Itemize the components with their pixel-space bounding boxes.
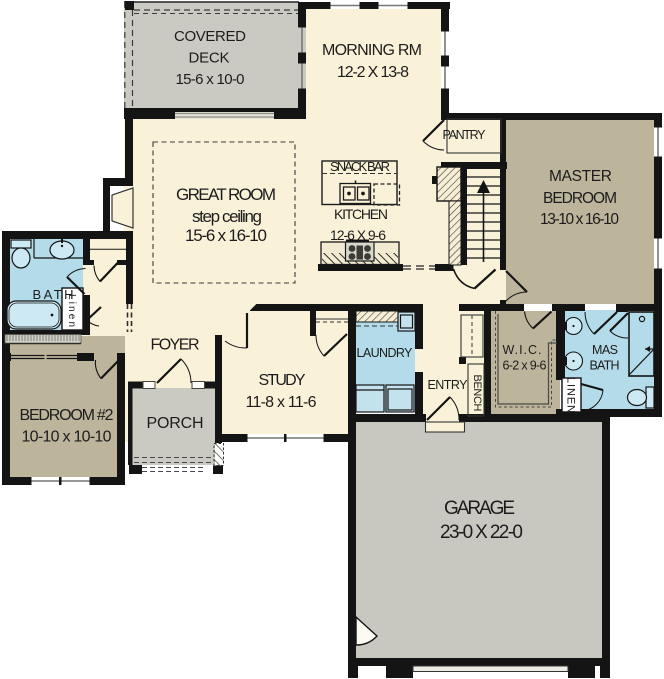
svg-text:GREAT ROOM: GREAT ROOM xyxy=(176,185,276,204)
svg-text:11-8 x 11-6: 11-8 x 11-6 xyxy=(246,394,317,411)
svg-text:13-10 x 16-10: 13-10 x 16-10 xyxy=(540,211,619,228)
svg-text:LINEN: LINEN xyxy=(565,377,577,413)
svg-text:W.I.C.: W.I.C. xyxy=(503,343,542,357)
svg-text:Linen: Linen xyxy=(66,294,77,327)
svg-text:GARAGE: GARAGE xyxy=(444,498,515,519)
svg-text:12-2 X 13-8: 12-2 X 13-8 xyxy=(337,64,409,81)
svg-text:step ceiling: step ceiling xyxy=(192,207,262,226)
svg-text:COVERED: COVERED xyxy=(174,28,246,45)
svg-text:SNACK BAR: SNACK BAR xyxy=(330,159,390,174)
svg-text:STUDY: STUDY xyxy=(259,372,306,389)
svg-text:PANTRY: PANTRY xyxy=(443,128,487,142)
svg-text:FOYER: FOYER xyxy=(151,337,200,354)
svg-text:23-0 X 22-0: 23-0 X 22-0 xyxy=(440,522,523,543)
svg-text:MORNING RM: MORNING RM xyxy=(322,42,422,59)
svg-text:MAS: MAS xyxy=(592,343,618,357)
svg-text:6-2 x 9-6: 6-2 x 9-6 xyxy=(503,359,547,373)
svg-text:ENTRY: ENTRY xyxy=(428,378,469,392)
svg-text:MASTER: MASTER xyxy=(549,168,612,185)
svg-text:LAUNDRY: LAUNDRY xyxy=(357,346,414,360)
svg-text:10-10 x 10-10: 10-10 x 10-10 xyxy=(22,429,112,446)
svg-text:12-6 X 9-6: 12-6 X 9-6 xyxy=(330,227,386,243)
svg-text:BEDROOM: BEDROOM xyxy=(543,190,617,207)
svg-text:BATH: BATH xyxy=(590,359,620,373)
svg-text:BEDROOM #2: BEDROOM #2 xyxy=(20,407,114,424)
svg-text:DECK: DECK xyxy=(189,50,230,67)
svg-text:KITCHEN: KITCHEN xyxy=(334,206,388,222)
svg-text:15-6 x 10-0: 15-6 x 10-0 xyxy=(176,71,245,88)
svg-text:15-6 x 16-10: 15-6 x 16-10 xyxy=(185,226,267,245)
svg-text:PORCH: PORCH xyxy=(147,415,204,432)
svg-text:BENCH: BENCH xyxy=(471,375,483,412)
